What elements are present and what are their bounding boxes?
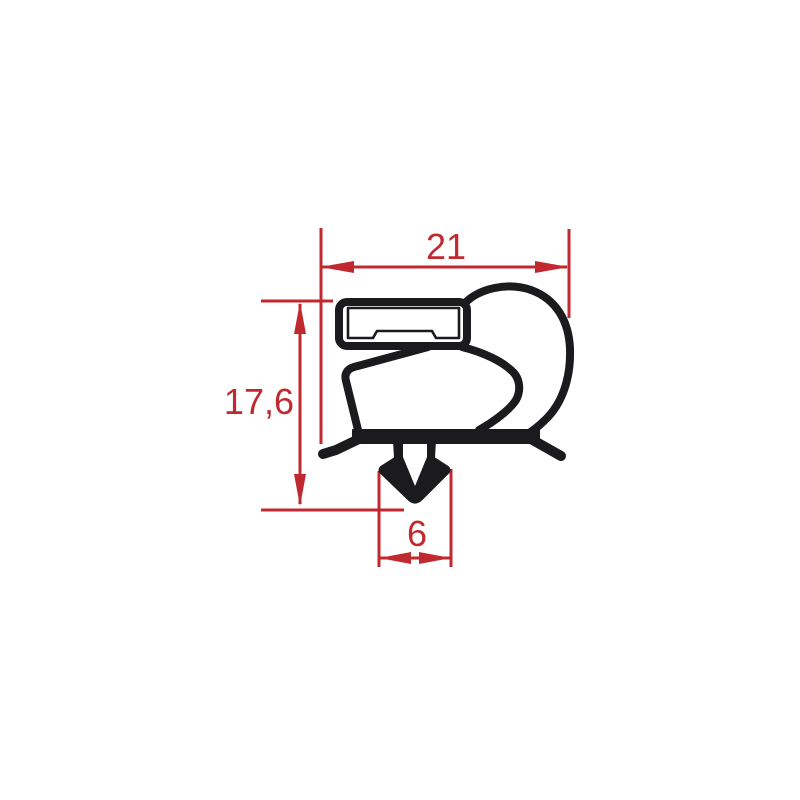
- technical-drawing: 21 17,6 6: [0, 0, 800, 800]
- right-fin: [531, 439, 561, 456]
- gasket-profile: [323, 286, 570, 502]
- bulb-inner-wall: [462, 347, 519, 430]
- dimension-label-dart-width: 6: [407, 513, 427, 554]
- dimension-label-overall-height: 17,6: [224, 381, 294, 422]
- arrowhead-right-icon: [535, 261, 569, 273]
- base-bar: [353, 430, 539, 443]
- hinge-flap-wall: [345, 347, 428, 430]
- arrowhead-left-icon: [320, 261, 354, 273]
- arrowhead-down-icon: [294, 474, 306, 506]
- arrowhead-up-icon: [294, 302, 306, 334]
- drawing-canvas: 21 17,6 6: [0, 0, 800, 800]
- bulb-outer-wall: [464, 286, 570, 435]
- dimension-label-overall-width: 21: [426, 226, 466, 267]
- left-fin: [323, 438, 361, 454]
